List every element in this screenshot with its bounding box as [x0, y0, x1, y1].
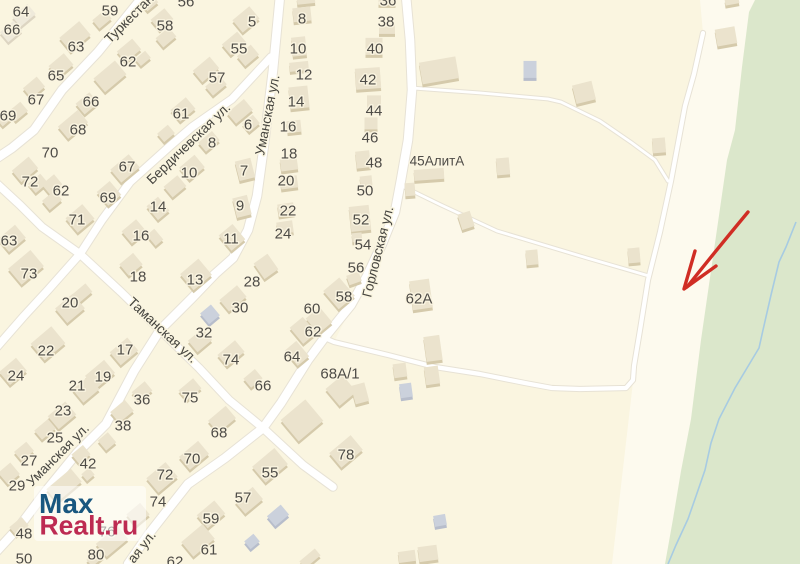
- svg-text:45АлитА: 45АлитА: [410, 154, 465, 169]
- svg-text:69: 69: [0, 108, 16, 125]
- svg-text:16: 16: [280, 119, 297, 136]
- svg-text:36: 36: [134, 392, 151, 409]
- svg-text:55: 55: [262, 465, 279, 482]
- svg-text:29: 29: [9, 478, 26, 495]
- svg-text:20: 20: [278, 173, 295, 190]
- svg-text:72: 72: [157, 467, 174, 484]
- svg-text:68А/1: 68А/1: [320, 366, 359, 383]
- svg-text:18: 18: [130, 269, 147, 286]
- svg-text:18: 18: [281, 146, 298, 163]
- svg-text:68: 68: [211, 425, 228, 442]
- svg-text:58: 58: [336, 289, 353, 306]
- svg-text:25: 25: [47, 430, 64, 447]
- svg-text:57: 57: [235, 490, 252, 507]
- svg-text:14: 14: [288, 94, 305, 111]
- svg-text:30: 30: [232, 300, 249, 317]
- svg-text:5: 5: [248, 14, 256, 31]
- svg-text:62: 62: [53, 183, 70, 200]
- svg-text:7: 7: [240, 163, 248, 180]
- svg-text:13: 13: [187, 272, 204, 289]
- svg-text:54: 54: [355, 237, 372, 254]
- svg-text:62А: 62А: [406, 291, 433, 308]
- svg-text:58: 58: [157, 18, 174, 35]
- svg-text:11: 11: [223, 231, 239, 248]
- svg-text:12: 12: [296, 67, 313, 84]
- svg-text:8: 8: [298, 11, 306, 28]
- svg-text:59: 59: [102, 3, 119, 20]
- svg-text:70: 70: [42, 145, 59, 162]
- svg-text:56: 56: [348, 260, 365, 277]
- svg-text:16: 16: [133, 228, 150, 245]
- svg-text:62: 62: [167, 554, 184, 564]
- svg-text:63: 63: [68, 39, 85, 56]
- svg-text:10: 10: [290, 41, 307, 58]
- svg-text:22: 22: [280, 203, 297, 220]
- svg-text:64: 64: [284, 349, 301, 366]
- svg-text:60: 60: [304, 301, 321, 318]
- svg-text:66: 66: [255, 378, 272, 395]
- svg-text:48: 48: [366, 155, 383, 172]
- svg-text:20: 20: [62, 295, 79, 312]
- svg-text:70: 70: [184, 451, 201, 468]
- svg-text:42: 42: [80, 456, 97, 473]
- svg-text:78: 78: [338, 447, 355, 464]
- svg-text:40: 40: [367, 41, 384, 58]
- svg-text:61: 61: [201, 542, 218, 559]
- svg-text:42: 42: [360, 72, 377, 89]
- svg-text:36: 36: [380, 0, 397, 10]
- svg-text:6: 6: [244, 117, 252, 134]
- svg-text:69: 69: [100, 190, 117, 207]
- svg-text:19: 19: [95, 369, 112, 386]
- svg-text:24: 24: [275, 226, 292, 243]
- svg-text:14: 14: [150, 199, 167, 216]
- svg-text:74: 74: [150, 494, 167, 511]
- svg-text:Realt.ru: Realt.ru: [40, 511, 139, 541]
- svg-text:46: 46: [362, 130, 379, 147]
- svg-text:48: 48: [16, 526, 33, 543]
- svg-text:23: 23: [55, 403, 72, 420]
- svg-text:67: 67: [119, 159, 136, 176]
- svg-text:66: 66: [4, 22, 21, 39]
- svg-text:9: 9: [236, 198, 244, 215]
- svg-text:61: 61: [173, 106, 190, 123]
- svg-text:55: 55: [231, 41, 248, 58]
- svg-text:17: 17: [117, 342, 134, 359]
- svg-text:50: 50: [357, 183, 374, 200]
- svg-text:64: 64: [13, 4, 30, 21]
- svg-text:28: 28: [244, 274, 261, 291]
- svg-text:65: 65: [48, 68, 65, 85]
- svg-text:62: 62: [120, 54, 137, 71]
- svg-text:56: 56: [178, 0, 195, 11]
- svg-text:21: 21: [69, 378, 86, 395]
- svg-text:73: 73: [21, 266, 38, 283]
- svg-text:38: 38: [378, 14, 395, 31]
- svg-text:24: 24: [8, 368, 25, 385]
- svg-text:80: 80: [88, 547, 105, 564]
- svg-text:74: 74: [223, 352, 240, 369]
- svg-text:50: 50: [16, 551, 33, 564]
- svg-text:66: 66: [83, 94, 100, 111]
- svg-text:68: 68: [70, 122, 87, 139]
- svg-text:22: 22: [38, 343, 55, 360]
- svg-text:38: 38: [115, 418, 132, 435]
- svg-text:27: 27: [21, 453, 38, 470]
- svg-text:57: 57: [209, 70, 226, 87]
- svg-text:32: 32: [196, 325, 213, 342]
- svg-text:62: 62: [305, 324, 322, 341]
- svg-text:71: 71: [69, 212, 86, 229]
- svg-text:8: 8: [208, 135, 216, 152]
- svg-text:10: 10: [181, 165, 198, 182]
- svg-text:67: 67: [28, 92, 45, 109]
- svg-text:72: 72: [22, 174, 39, 191]
- svg-text:44: 44: [366, 103, 383, 120]
- svg-text:63: 63: [1, 233, 18, 250]
- svg-text:75: 75: [182, 390, 199, 407]
- svg-text:52: 52: [353, 212, 370, 229]
- svg-text:59: 59: [203, 511, 220, 528]
